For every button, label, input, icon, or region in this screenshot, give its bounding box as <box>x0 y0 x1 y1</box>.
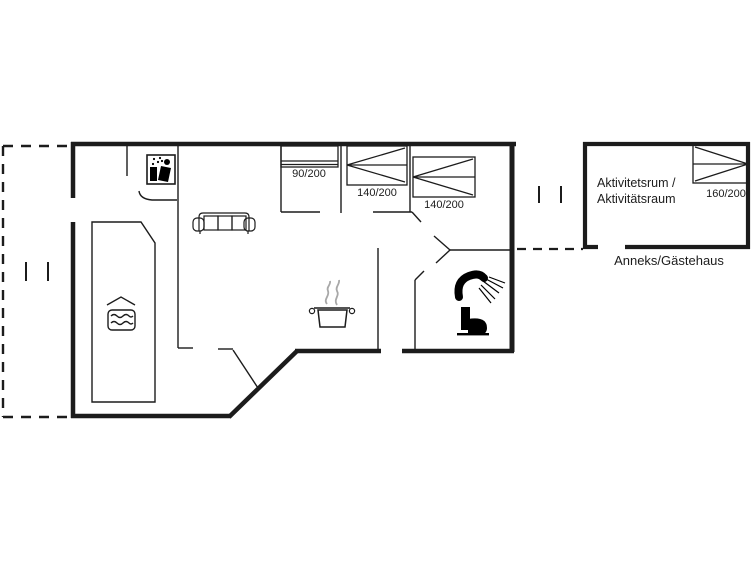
bed-160x200 <box>693 145 748 183</box>
bed-140x200-b <box>413 157 475 197</box>
annex-room-name-line1: Aktivitetsrum / <box>597 176 676 190</box>
pool <box>92 222 155 402</box>
bed-90-label: 90/200 <box>292 168 326 180</box>
bed-160-label: 160/200 <box>706 188 746 200</box>
bed-140-a-label: 140/200 <box>357 187 397 199</box>
pool-water-icon <box>107 297 135 330</box>
kitchen-pot-icon <box>309 308 354 327</box>
main-house-walls <box>71 142 516 418</box>
bed-140-b-label: 140/200 <box>424 199 464 211</box>
steam-icon <box>326 280 339 305</box>
shower-icon <box>458 274 505 303</box>
window-tick-marks <box>26 186 561 281</box>
bed-140x200-a <box>347 146 407 185</box>
floor-plan-page: 90/200 140/200 140/200 160/200 Aktivitet… <box>0 0 755 566</box>
toilet-icon <box>457 307 489 335</box>
shower-sauna-icon <box>147 155 175 184</box>
bed-90x200 <box>281 146 338 167</box>
annex-caption: Anneks/Gästehaus <box>614 253 724 268</box>
sofa <box>193 213 255 234</box>
annex-room-name-line2: Aktivitätsraum <box>597 192 676 206</box>
terrace-dashed-outline <box>3 146 71 417</box>
floor-plan-svg: 90/200 140/200 140/200 160/200 Aktivitet… <box>0 0 755 566</box>
